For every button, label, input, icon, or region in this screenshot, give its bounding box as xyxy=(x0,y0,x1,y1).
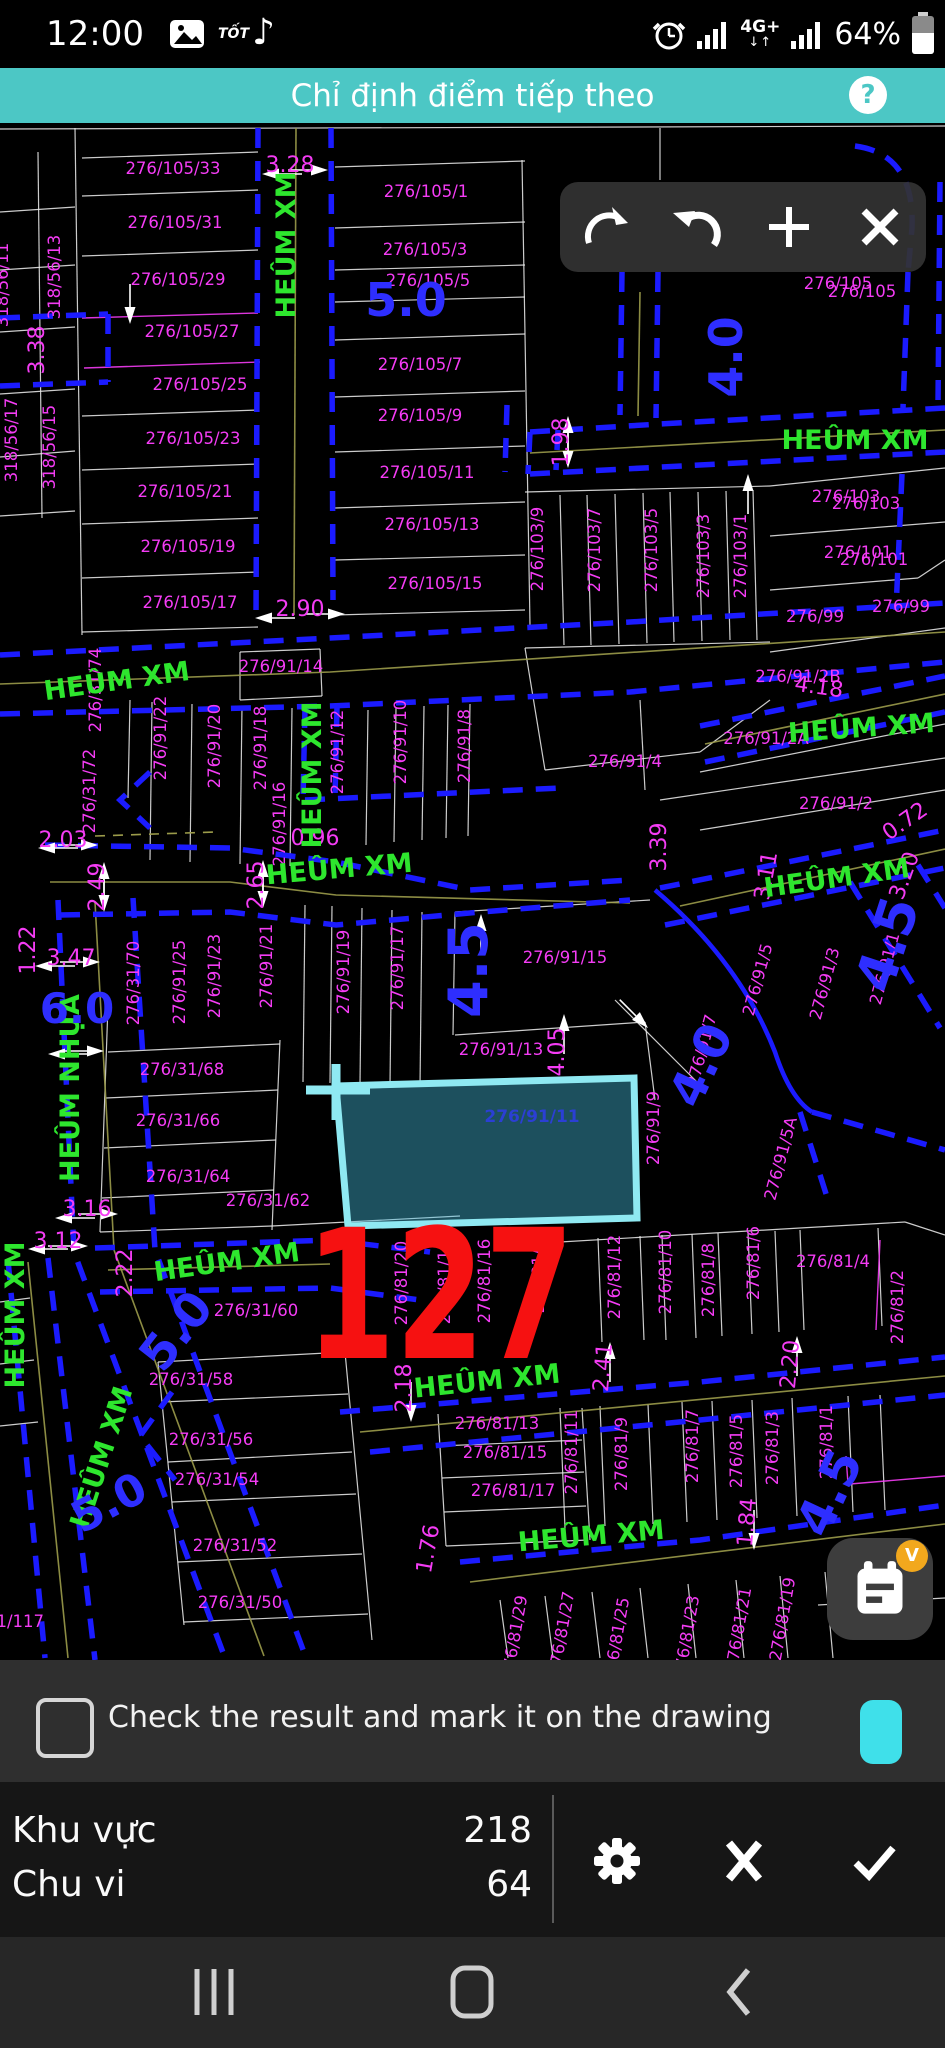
page-title: Chỉ định điểm tiếp theo xyxy=(0,78,945,114)
arc-icon xyxy=(578,199,634,255)
parcel-label: 318/56/17 xyxy=(2,398,21,483)
parcel-label: 276/105/11 xyxy=(379,463,474,482)
dimension-label: 1.98 xyxy=(549,418,574,467)
close-button[interactable] xyxy=(844,191,916,263)
parcel-label: 276/105/9 xyxy=(378,406,463,425)
parcel-label: 276/103/3 xyxy=(694,514,713,599)
signal-icon xyxy=(790,17,824,51)
confirm-button[interactable] xyxy=(844,1831,904,1891)
dimension-label: 2.03 xyxy=(39,828,88,853)
dimension-label: 4.05 xyxy=(545,1028,570,1077)
parcel-label: 276/105/29 xyxy=(130,270,225,289)
parcel-label: 276/105/19 xyxy=(140,537,235,556)
check-result-label: Check the result and mark it on the draw… xyxy=(108,1700,772,1735)
parcel-label: 276/105/27 xyxy=(144,322,239,341)
parcel-label: 276/105/1 xyxy=(384,182,469,201)
dimension-label: 3.47 xyxy=(47,946,96,971)
parcel-label: 276/91/8 xyxy=(455,709,474,783)
parcel-label: 276/101 xyxy=(840,550,909,569)
parcel-label: 276/91/12 xyxy=(328,710,347,795)
street-label: HEÛM XM xyxy=(296,702,328,849)
close-icon xyxy=(852,199,908,255)
parcel-label: 276/31/68 xyxy=(140,1060,225,1079)
parcel-label: 276/105/23 xyxy=(145,429,240,448)
signal-icon xyxy=(696,17,730,51)
parcel-label: 276/105/31 xyxy=(127,213,222,232)
parcel-label: 276/103/1 xyxy=(731,514,750,599)
area-value: 218 xyxy=(432,1810,532,1851)
parcel-label: 276/105/15 xyxy=(387,574,482,593)
parcel-label: 276/103/7 xyxy=(585,508,604,593)
dimension-label: 2.41 xyxy=(589,1342,618,1393)
parcel-label: 276/103 xyxy=(832,494,901,513)
parcel-label: 276/105/21 xyxy=(137,482,232,501)
dimension-label: 2.49 xyxy=(85,863,110,912)
cancel-button[interactable] xyxy=(714,1831,774,1891)
parcel-label: 276/81/8 xyxy=(699,1243,718,1317)
drawing-toolbar xyxy=(560,182,926,272)
parcel-label: 276/81/9 xyxy=(612,1417,631,1491)
parcel-label: 31/117 xyxy=(0,1612,44,1631)
perimeter-label: Chu vi xyxy=(12,1864,126,1905)
add-point-button[interactable] xyxy=(753,191,825,263)
parcel-label: 276/99 xyxy=(872,597,930,616)
parcel-label: 276/91/20 xyxy=(205,704,224,789)
tiktok-icon: ♪ xyxy=(252,12,275,53)
parcel-label: 276/31/56 xyxy=(169,1430,254,1449)
parcel-label: 276/105/33 xyxy=(125,159,220,178)
x-icon xyxy=(715,1832,773,1890)
network-type-indicator: 4G+ ↓↑ xyxy=(740,19,780,49)
parcel-label: 276/91/17 xyxy=(388,926,407,1011)
back-button[interactable] xyxy=(705,1960,775,2024)
parcel-label: 276/91/15 xyxy=(523,948,608,967)
dimension-label: 1.84 xyxy=(733,1497,762,1548)
parcel-label: 276/103/9 xyxy=(528,507,547,592)
help-button[interactable]: ? xyxy=(849,76,887,114)
parcel-label: 276/91/14 xyxy=(239,657,324,676)
parcel-label: 318/56/15 xyxy=(40,405,59,490)
road-width-label: 4.0 xyxy=(699,316,753,398)
parcel-label: 276/31/72 xyxy=(80,749,99,834)
gear-icon xyxy=(588,1832,646,1890)
parcel-label: 276/91/16 xyxy=(270,782,289,867)
street-label: HEÛM XM xyxy=(0,1242,31,1389)
recents-icon xyxy=(187,1964,243,2020)
parcel-label: 276/31/64 xyxy=(146,1167,231,1186)
dimension-label: 3.16 xyxy=(63,1197,112,1222)
battery-icon xyxy=(911,11,935,57)
dimension-label: 1.22 xyxy=(16,926,41,975)
street-label: HEÛM XM xyxy=(782,424,929,456)
dimension-label: 2.20 xyxy=(776,1339,805,1390)
parcel-label: 276/91/25 xyxy=(170,940,189,1025)
tot-status-text: TỐT xyxy=(218,26,249,42)
parcel-label: 276/81/6 xyxy=(744,1226,763,1300)
parcel-label: 276/91/23 xyxy=(205,934,224,1019)
parcel-label: 276/31/60 xyxy=(214,1301,299,1320)
dimension-label: 2.22 xyxy=(113,1249,138,1298)
measurement-panel: Khu vực 218 Chu vi 64 xyxy=(0,1782,945,1937)
parcel-label: 276/91/19 xyxy=(334,930,353,1015)
home-icon xyxy=(444,1964,500,2020)
parcel-label: 276/105/7 xyxy=(378,355,463,374)
parcel-label: 276/91/18 xyxy=(251,706,270,791)
undo-icon xyxy=(669,199,725,255)
parcel-label: 276/105/25 xyxy=(152,375,247,394)
home-button[interactable] xyxy=(437,1960,507,2024)
plus-icon xyxy=(761,199,817,255)
parcel-label: 276/91/13 xyxy=(459,1040,544,1059)
alarm-icon xyxy=(652,15,686,53)
parcel-label: 276/31/50 xyxy=(198,1593,283,1612)
area-label: Khu vực xyxy=(12,1810,157,1851)
parcel-label: 276/81/4 xyxy=(796,1252,870,1271)
back-icon xyxy=(712,1964,768,2020)
parcel-label: 276/31/70 xyxy=(124,941,143,1026)
parcel-label: 276/31/66 xyxy=(136,1111,221,1130)
street-label: HEÛM XM xyxy=(270,172,302,319)
check-icon xyxy=(845,1832,903,1890)
clock-text: 12:00 xyxy=(46,14,144,54)
parcel-label: 318/56/13 xyxy=(45,235,64,320)
panel-divider xyxy=(552,1795,554,1923)
dimension-label: 3.38 xyxy=(25,326,50,375)
color-chip[interactable] xyxy=(860,1700,902,1764)
parcel-label: 276/31/54 xyxy=(175,1470,260,1489)
dimension-label: 2.90 xyxy=(276,597,325,622)
perimeter-value: 64 xyxy=(432,1864,532,1905)
parcel-label: 276/31/52 xyxy=(193,1536,278,1555)
parcel-label: 276/81/2 xyxy=(888,1270,907,1344)
parcel-label: 276/81/5 xyxy=(727,1414,746,1488)
parcel-label: 276/91/2 xyxy=(799,794,873,813)
parcel-label: 276/81/11 xyxy=(562,1410,581,1495)
parcel-label: 276/91/21 xyxy=(257,924,276,1009)
parcel-label: 276/105/3 xyxy=(383,240,468,259)
parcel-label: 276/105 xyxy=(828,282,897,301)
map-canvas[interactable]: 318/56/11318/56/13318/56/15318/56/17276/… xyxy=(0,123,945,1660)
parcel-label: 276/81/3 xyxy=(763,1411,782,1485)
title-bar: Chỉ định điểm tiếp theo ? xyxy=(0,68,945,123)
dimension-label: 3.12 xyxy=(34,1229,83,1254)
status-bar: 12:00 TỐT ♪ 4G+ ↓↑ 64% xyxy=(0,0,945,68)
parcel-label: 276/99 xyxy=(786,607,844,626)
parcel-label: 276/31/62 xyxy=(226,1191,311,1210)
road-width-label: 4.5 xyxy=(437,922,500,1018)
parcel-label: 276/91/4 xyxy=(588,752,662,771)
parcel-label: 276/81/15 xyxy=(463,1443,548,1462)
parcel-label: 276/81/17 xyxy=(471,1481,556,1500)
parcel-label: 276/81/12 xyxy=(605,1235,624,1320)
parcel-label: 276/91/22 xyxy=(151,696,170,781)
parcel-label: 276/81/7 xyxy=(683,1409,702,1483)
parcel-label: 276/91/10 xyxy=(391,700,410,785)
parcel-label: 276/91/9 xyxy=(644,1091,663,1165)
battery-percent-text: 64% xyxy=(834,17,901,52)
road-width-label: 5.0 xyxy=(365,273,447,327)
undo-button[interactable] xyxy=(661,191,733,263)
parcel-label: 276/103/5 xyxy=(642,508,661,593)
fab-version-badge: V xyxy=(896,1540,928,1572)
parcel-label: 276/105/17 xyxy=(142,593,237,612)
settings-button[interactable] xyxy=(587,1831,647,1891)
road-width-label: 6.0 xyxy=(40,984,114,1033)
recents-button[interactable] xyxy=(180,1960,250,2024)
dimension-label: 3.39 xyxy=(647,823,672,872)
arc-segment-button[interactable] xyxy=(570,191,642,263)
check-result-checkbox[interactable] xyxy=(36,1698,94,1758)
parcel-label: 318/56/11 xyxy=(0,243,12,328)
parcel-label: 276/81/10 xyxy=(656,1230,675,1315)
gallery-icon xyxy=(168,16,206,52)
selected-parcel-label: 276/91/11 xyxy=(484,1107,579,1127)
parcel-label: 276/81/13 xyxy=(455,1414,540,1433)
parcel-label: 276/105/13 xyxy=(384,515,479,534)
block-number-marker: 127 xyxy=(306,1192,574,1401)
